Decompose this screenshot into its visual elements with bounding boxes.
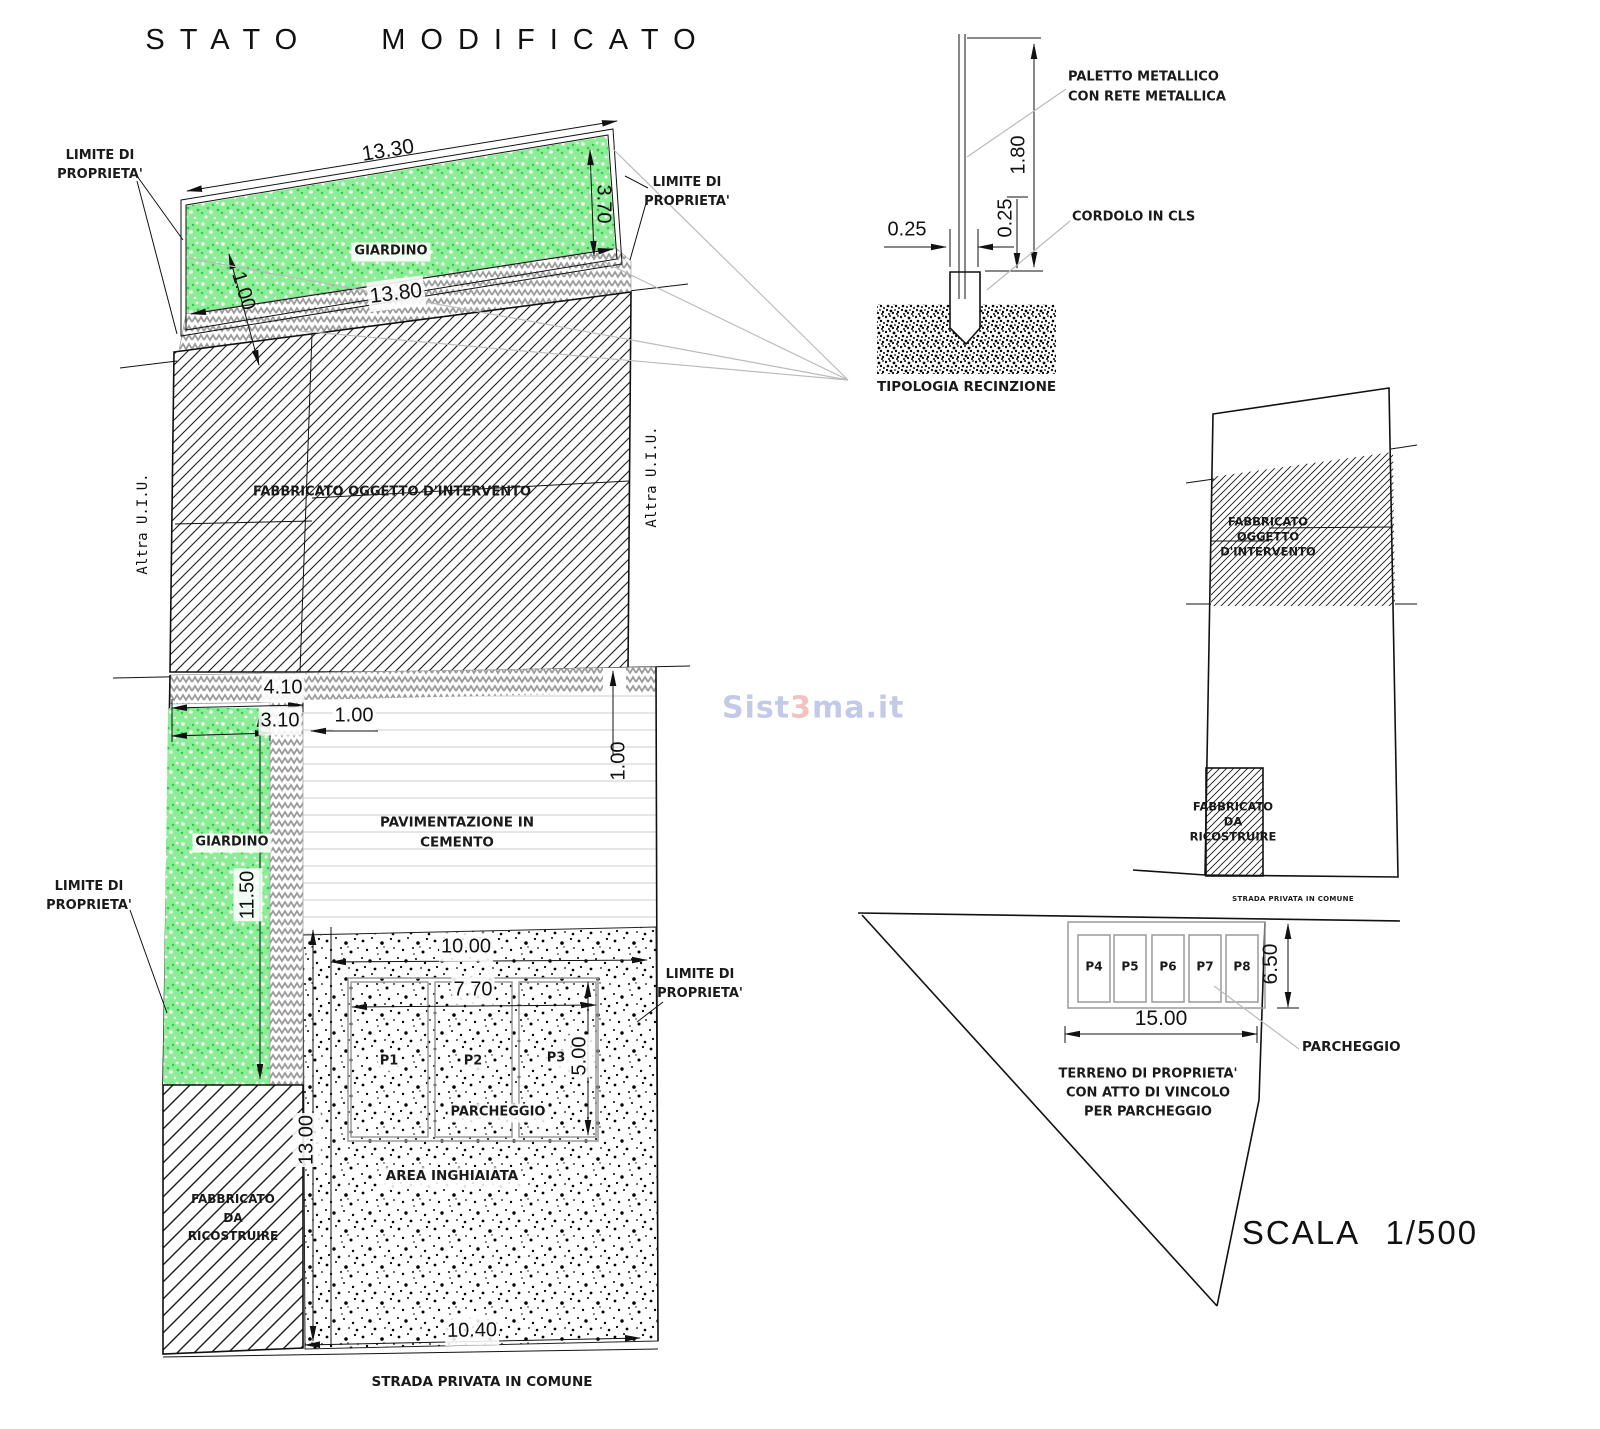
dim-10-40: 10.40: [445, 1316, 500, 1346]
watermark-part1: Sist: [722, 690, 790, 725]
property-limit-label-mid-right: LIMITE DI PROPRIETA': [657, 966, 743, 1004]
building-main-label: FABBRICATO OGGETTO D'INTERVENTO: [253, 484, 531, 503]
property-limit-line2: PROPRIETA': [644, 193, 730, 212]
overview-rebuild-label: FABBRICATO DA RICOSTRUIRE: [1190, 800, 1277, 845]
property-limit-line1: LIMITE DI: [657, 966, 743, 985]
sheet-title: STATO MODIFICATO: [145, 19, 710, 61]
overview-parking-label: PARCHEGGIO: [1302, 1038, 1401, 1058]
stall-label-p2: P2: [462, 1053, 485, 1072]
building-main: [170, 292, 631, 672]
dim-7-70: 7.70: [452, 976, 495, 1005]
restricted-land-label: TERRENO DI PROPRIETA' CON ATTO DI VINCOL…: [1058, 1066, 1237, 1123]
dim-11-50: 11.50: [234, 869, 263, 922]
dim-5-00: 5.00: [566, 1035, 595, 1078]
site-plan-sheet: STATO MODIFICATO LIMITE DI PROPRIETA' LI…: [0, 0, 1600, 1429]
property-limit-line1: LIMITE DI: [644, 174, 730, 193]
dim-0-25-h: 0.25: [888, 216, 927, 245]
overview-building-label: FABBRICATO OGGETTO D'INTERVENTO: [1220, 515, 1316, 560]
scale-label: SCALA 1/500: [1242, 1209, 1478, 1257]
stall-label-p1: P1: [378, 1053, 401, 1072]
private-road-label-main: STRADA PRIVATA IN COMUNE: [371, 1373, 592, 1393]
gravel-area-label: AREA INGHIAIATA: [383, 1167, 521, 1187]
restricted-land-line1: TERRENO DI PROPRIETA': [1058, 1066, 1237, 1085]
dim-1-00-a: 1.00: [333, 702, 376, 731]
concrete-pavement-label: PAVIMENTAZIONE IN CEMENTO: [380, 813, 534, 852]
property-limit-line2: PROPRIETA': [657, 985, 743, 1004]
pavement-line2: CEMENTO: [380, 833, 534, 853]
stall-label-p5: P5: [1121, 958, 1138, 975]
dim-10-00: 10.00: [439, 933, 493, 962]
property-limit-line1: LIMITE DI: [57, 147, 143, 166]
watermark-part3: ma.it: [812, 690, 905, 725]
dim-1-80: 1.80: [1005, 136, 1034, 175]
property-limit-label-mid-left: LIMITE DI PROPRIETA': [46, 878, 132, 916]
dim-15-00: 15.00: [1135, 1004, 1188, 1034]
stall-label-p4: P4: [1085, 958, 1102, 975]
ov-rebuild-line3: RICOSTRUIRE: [1190, 829, 1277, 844]
property-limit-line2: PROPRIETA': [57, 166, 143, 185]
ov-building-line1: FABBRICATO: [1220, 515, 1316, 530]
building-to-rebuild-label-main: FABBRICATO DA RICOSTRUIRE: [188, 1190, 278, 1246]
dim-4-10: 4.10: [262, 674, 305, 703]
metal-post-line2: CON RETE METALLICA: [1068, 87, 1226, 107]
garden-label-top: GIARDINO: [351, 243, 430, 262]
property-limit-line2: PROPRIETA': [46, 897, 132, 916]
rebuild-line2: DA: [188, 1209, 278, 1228]
dim-3-10: 3.10: [259, 707, 302, 736]
dim-3-70: 3.70: [589, 185, 618, 224]
rebuild-line1: FABBRICATO: [188, 1190, 278, 1209]
dim-1-00-b: 1.00: [605, 742, 634, 781]
restricted-land-line3: PER PARCHEGGIO: [1058, 1103, 1237, 1122]
path-left: [270, 697, 303, 1085]
stall-label-p6: P6: [1159, 958, 1176, 975]
property-limit-line1: LIMITE DI: [46, 878, 132, 897]
stall-label-p7: P7: [1196, 958, 1213, 975]
parking-label-main: PARCHEGGIO: [448, 1104, 549, 1123]
ov-rebuild-line2: DA: [1190, 815, 1277, 830]
other-uiu-label-right: Altra U.I.U.: [642, 426, 662, 527]
garden-label-left: GIARDINO: [192, 834, 271, 853]
other-uiu-label-left: Altra U.I.U.: [133, 473, 153, 574]
fence-type-caption: TIPOLOGIA RECINZIONE: [877, 378, 1056, 398]
dim-13-00: 13.00: [293, 1113, 322, 1167]
ov-building-line2: OGGETTO: [1220, 530, 1316, 545]
rebuild-line3: RICOSTRUIRE: [188, 1227, 278, 1246]
stall-label-p8: P8: [1233, 958, 1250, 975]
restricted-land-line2: CON ATTO DI VINCOLO: [1058, 1085, 1237, 1104]
dim-0-25-v: 0.25: [992, 199, 1021, 238]
property-limit-label-top-left: LIMITE DI PROPRIETA': [57, 147, 143, 185]
watermark: Sist3ma.it: [722, 686, 905, 730]
dim-6-50: 6.50: [1256, 944, 1286, 985]
fence-detail: [877, 34, 1070, 374]
pavement-line1: PAVIMENTAZIONE IN: [380, 813, 534, 833]
overview-private-road-label: STRADA PRIVATA IN COMUNE: [1232, 894, 1354, 904]
watermark-part2: 3: [790, 690, 812, 725]
curb-label: CORDOLO IN CLS: [1072, 209, 1195, 228]
stall-label-p3: P3: [545, 1050, 568, 1069]
metal-post-label: PALETTO METALLICO CON RETE METALLICA: [1068, 68, 1226, 107]
ov-rebuild-line1: FABBRICATO: [1190, 800, 1277, 815]
ov-building-line3: D'INTERVENTO: [1220, 544, 1316, 559]
overview-plan: [858, 388, 1417, 1306]
metal-post-line1: PALETTO METALLICO: [1068, 68, 1226, 88]
property-limit-label-top-right: LIMITE DI PROPRIETA': [644, 174, 730, 212]
